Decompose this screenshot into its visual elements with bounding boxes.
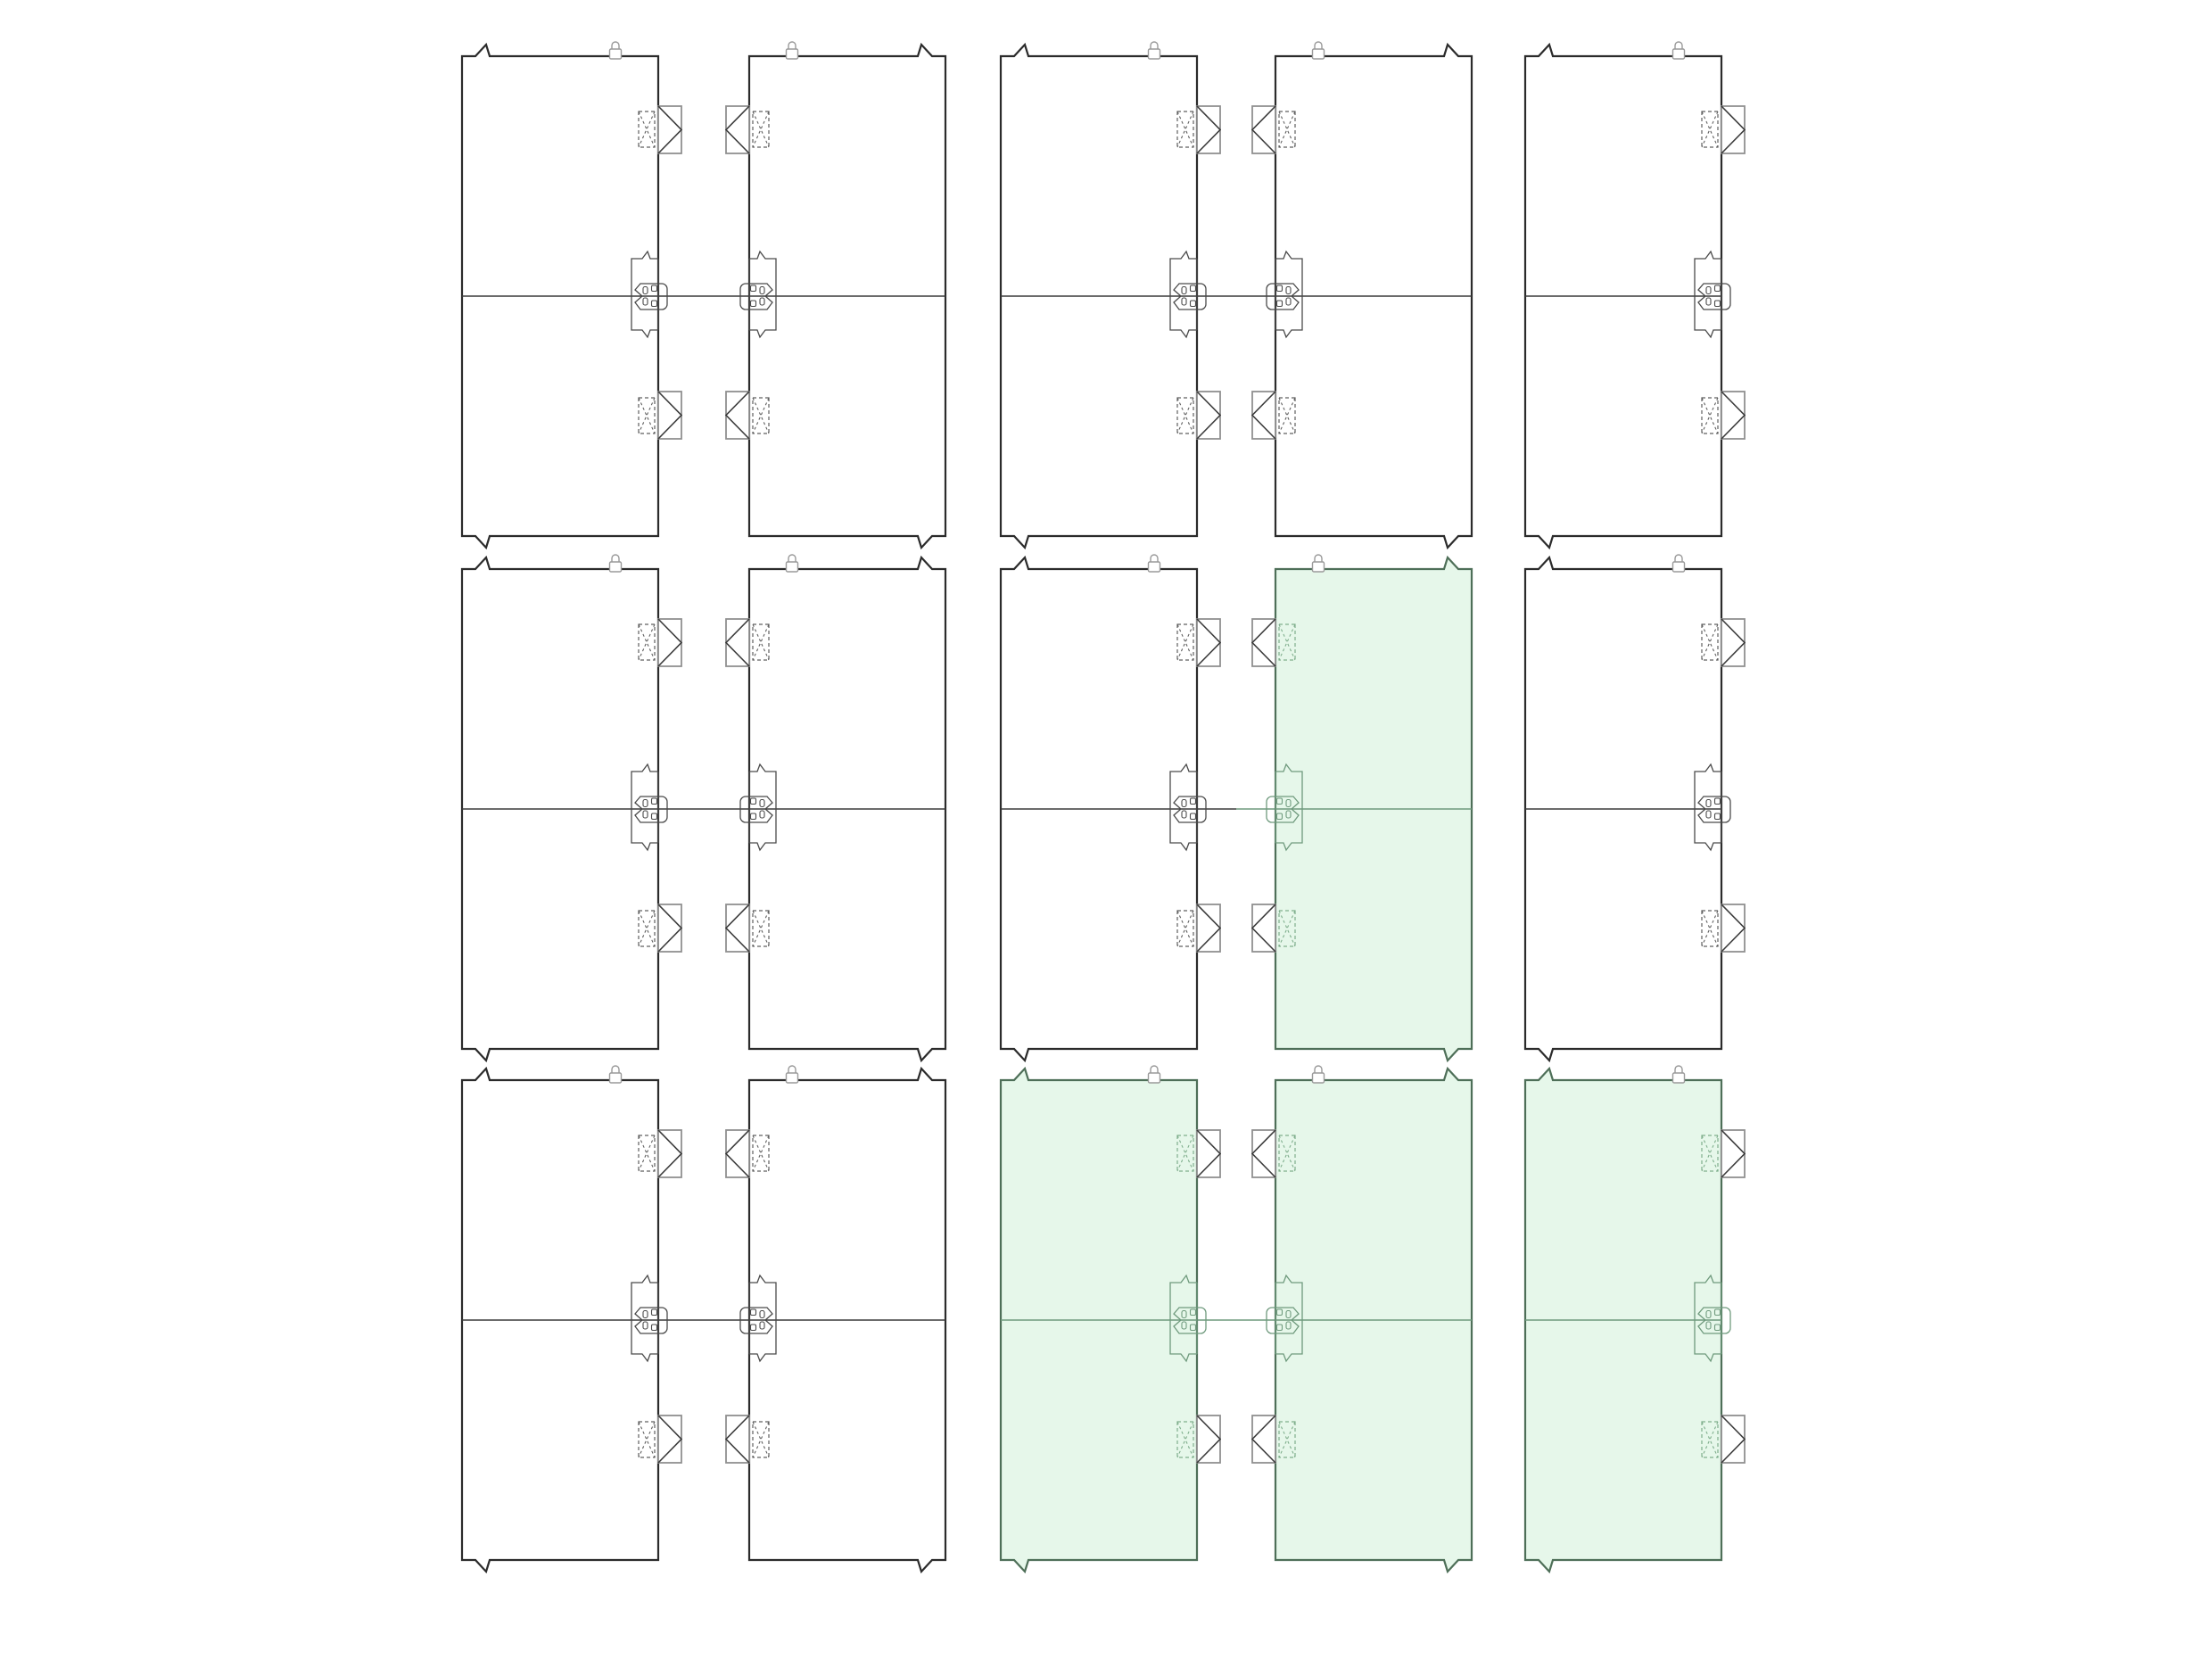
unit-r3c2[interactable]: [726, 1066, 945, 1572]
padlock-icon: [787, 555, 798, 572]
door-swing-box-bottom: [1197, 1416, 1220, 1463]
door-swing-box-bottom: [658, 392, 681, 439]
padlock-body: [1149, 562, 1160, 572]
door-box-rect: [1721, 904, 1745, 952]
door-swing-box-top: [1197, 619, 1220, 666]
door-box-rect: [1252, 392, 1275, 439]
door-swing-box-bottom: [658, 904, 681, 952]
unit-r1c1[interactable]: [462, 42, 681, 548]
door-swing-box-top: [1197, 106, 1220, 153]
door-box-rect: [1721, 392, 1745, 439]
padlock-shackle: [1151, 1066, 1158, 1073]
padlock-shackle: [1675, 555, 1682, 562]
padlock-shackle: [1315, 42, 1322, 49]
padlock-shackle: [1675, 1066, 1682, 1073]
padlock-icon: [610, 555, 622, 572]
door-box-rect: [658, 619, 681, 666]
door-box-rect: [726, 904, 749, 952]
door-swing-box-top: [726, 1130, 749, 1177]
padlock-icon: [610, 42, 622, 59]
unit-r2c2[interactable]: [726, 555, 945, 1061]
door-swing-box-top: [1252, 619, 1275, 666]
door-box-rect: [658, 392, 681, 439]
door-box-rect: [1197, 392, 1220, 439]
door-swing-box-bottom: [1721, 904, 1745, 952]
door-swing-box-top: [1721, 619, 1745, 666]
door-box-rect: [1197, 1416, 1220, 1463]
padlock-icon: [1149, 555, 1160, 572]
door-box-rect: [658, 1416, 681, 1463]
padlock-shackle: [1151, 42, 1158, 49]
door-box-rect: [1721, 1416, 1745, 1463]
unit-r3c4[interactable]: [1252, 1066, 1472, 1572]
door-box-rect: [726, 1416, 749, 1463]
unit-r3c3[interactable]: [1001, 1066, 1220, 1572]
unit-r1c3[interactable]: [1001, 42, 1220, 548]
door-swing-box-bottom: [658, 1416, 681, 1463]
padlock-shackle: [612, 42, 619, 49]
door-box-rect: [1197, 619, 1220, 666]
padlock-body: [787, 49, 798, 59]
padlock-body: [610, 49, 622, 59]
unit-r2c3[interactable]: [1001, 555, 1220, 1061]
padlock-icon: [1673, 1066, 1685, 1083]
door-box-rect: [1197, 904, 1220, 952]
door-box-rect: [726, 392, 749, 439]
door-box-rect: [1252, 106, 1275, 153]
padlock-icon: [610, 1066, 622, 1083]
padlock-body: [1673, 49, 1685, 59]
padlock-shackle: [1151, 555, 1158, 562]
door-swing-box-bottom: [1252, 392, 1275, 439]
padlock-icon: [787, 1066, 798, 1083]
padlock-body: [1313, 49, 1325, 59]
padlock-icon: [1149, 1066, 1160, 1083]
door-swing-box-top: [658, 1130, 681, 1177]
padlock-body: [610, 562, 622, 572]
door-swing-box-bottom: [1197, 392, 1220, 439]
door-box-rect: [1721, 619, 1745, 666]
door-box-rect: [1197, 1130, 1220, 1177]
padlock-body: [1149, 1073, 1160, 1083]
door-box-rect: [1721, 106, 1745, 153]
padlock-shackle: [612, 1066, 619, 1073]
door-swing-box-top: [1197, 1130, 1220, 1177]
padlock-shackle: [612, 555, 619, 562]
door-swing-box-top: [1252, 106, 1275, 153]
door-swing-box-bottom: [1721, 392, 1745, 439]
padlock-body: [1673, 562, 1685, 572]
padlock-shackle: [788, 42, 796, 49]
padlock-body: [787, 1073, 798, 1083]
padlock-body: [787, 562, 798, 572]
padlock-icon: [1313, 555, 1325, 572]
padlock-icon: [1149, 42, 1160, 59]
padlock-icon: [1673, 555, 1685, 572]
door-box-rect: [1197, 106, 1220, 153]
unit-r2c5[interactable]: [1525, 555, 1745, 1061]
padlock-shackle: [788, 1066, 796, 1073]
padlock-shackle: [1675, 42, 1682, 49]
door-swing-box-bottom: [1721, 1416, 1745, 1463]
padlock-body: [1673, 1073, 1685, 1083]
door-box-rect: [1721, 1130, 1745, 1177]
door-swing-box-top: [1721, 1130, 1745, 1177]
unit-r2c4[interactable]: [1252, 555, 1472, 1061]
unit-r1c5[interactable]: [1525, 42, 1745, 548]
unit-r2c1[interactable]: [462, 555, 681, 1061]
door-box-rect: [658, 1130, 681, 1177]
door-swing-box-top: [658, 106, 681, 153]
door-swing-box-top: [1252, 1130, 1275, 1177]
door-box-rect: [726, 619, 749, 666]
unit-r3c1[interactable]: [462, 1066, 681, 1572]
padlock-shackle: [1315, 1066, 1322, 1073]
door-box-rect: [1252, 904, 1275, 952]
door-swing-box-top: [1721, 106, 1745, 153]
floor-plan-canvas: [0, 0, 2212, 1659]
padlock-body: [610, 1073, 622, 1083]
door-swing-box-bottom: [1252, 904, 1275, 952]
padlock-icon: [787, 42, 798, 59]
padlock-shackle: [1315, 555, 1322, 562]
door-swing-box-bottom: [726, 904, 749, 952]
door-box-rect: [726, 106, 749, 153]
door-swing-box-bottom: [726, 1416, 749, 1463]
unit-r1c4[interactable]: [1252, 42, 1472, 548]
padlock-shackle: [788, 555, 796, 562]
door-swing-box-bottom: [1252, 1416, 1275, 1463]
door-box-rect: [658, 106, 681, 153]
padlock-body: [1313, 562, 1325, 572]
door-box-rect: [1252, 619, 1275, 666]
door-swing-box-top: [726, 106, 749, 153]
door-box-rect: [658, 904, 681, 952]
padlock-body: [1149, 49, 1160, 59]
padlock-icon: [1313, 1066, 1325, 1083]
padlock-icon: [1313, 42, 1325, 59]
door-swing-box-bottom: [726, 392, 749, 439]
unit-r3c5[interactable]: [1525, 1066, 1745, 1572]
padlock-body: [1313, 1073, 1325, 1083]
door-swing-box-bottom: [1197, 904, 1220, 952]
padlock-icon: [1673, 42, 1685, 59]
door-swing-box-top: [658, 619, 681, 666]
door-box-rect: [1252, 1416, 1275, 1463]
door-box-rect: [726, 1130, 749, 1177]
floor-plan-drawing: [0, 0, 2212, 1659]
unit-r1c2[interactable]: [726, 42, 945, 548]
door-swing-box-top: [726, 619, 749, 666]
door-box-rect: [1252, 1130, 1275, 1177]
